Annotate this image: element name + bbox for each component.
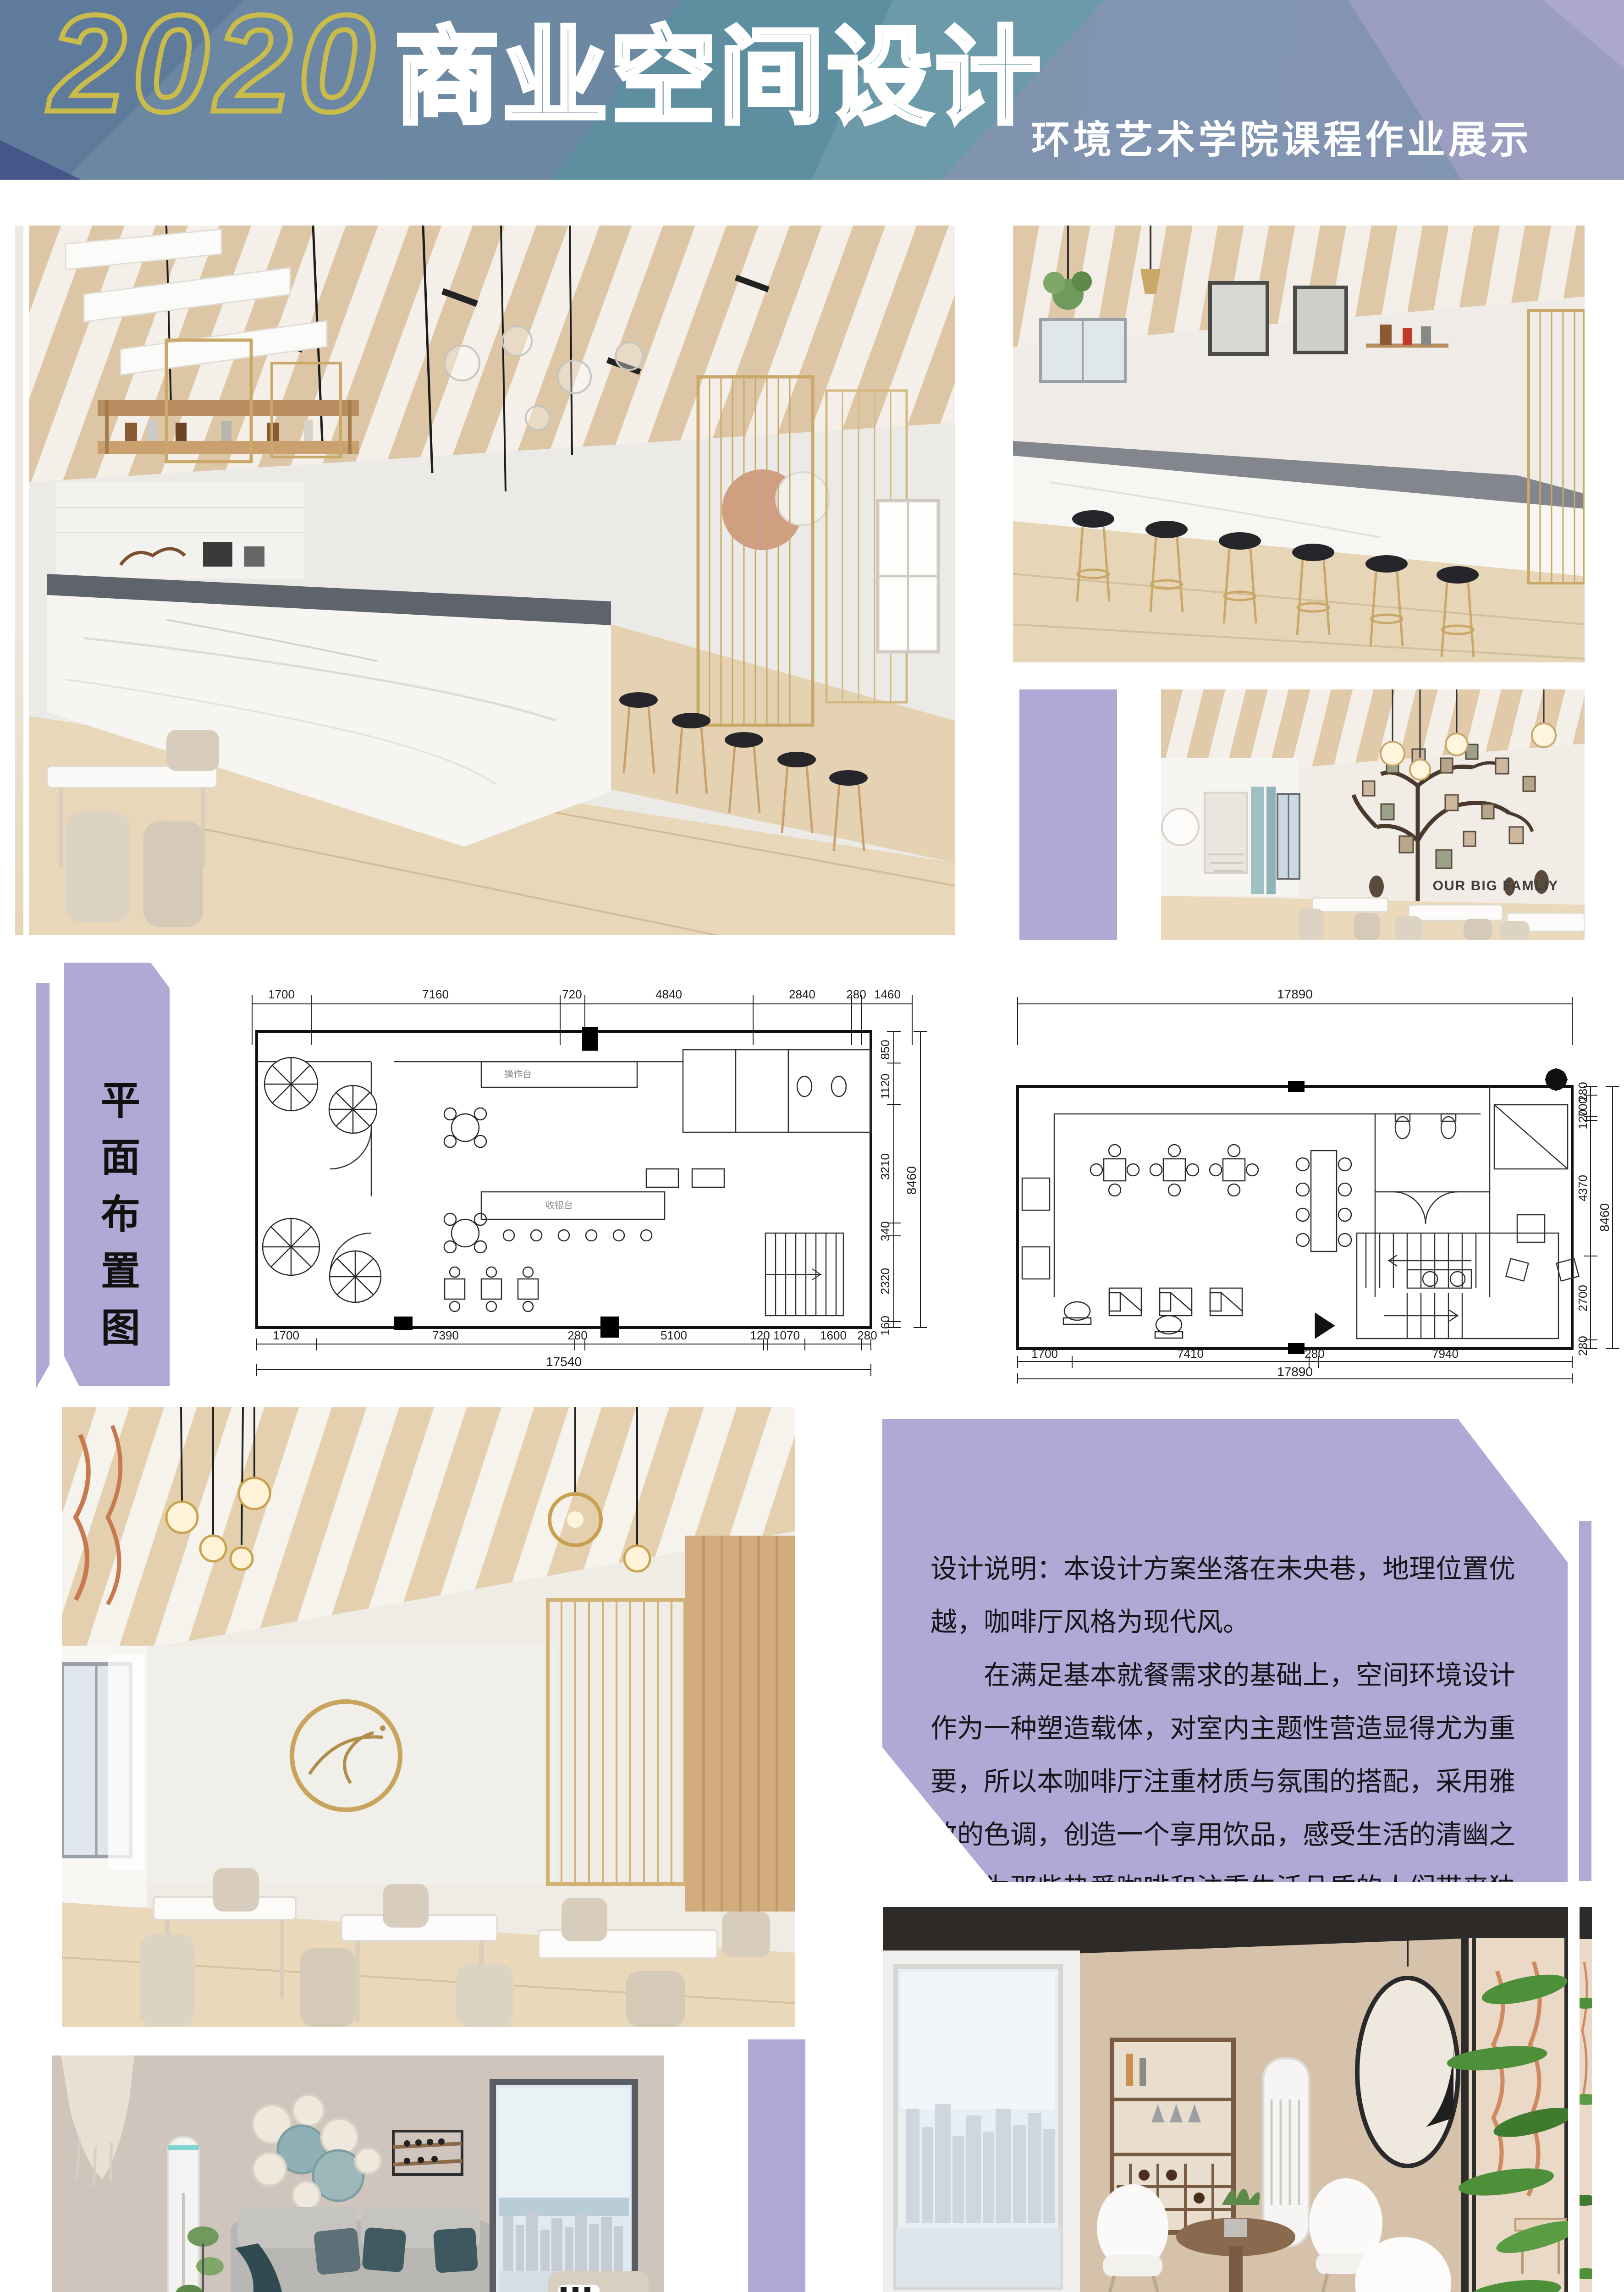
svg-text:720: 720 [562, 987, 582, 1001]
svg-text:5100: 5100 [661, 1328, 687, 1342]
svg-text:160: 160 [878, 1316, 892, 1335]
svg-text:1700: 1700 [1031, 1347, 1058, 1361]
plan-section-title: 平面布置图 [88, 1080, 146, 1364]
purple-accent-strip [1019, 689, 1117, 940]
svg-text:120: 120 [750, 1328, 770, 1342]
svg-text:7160: 7160 [422, 987, 449, 1001]
svg-text:2840: 2840 [789, 987, 815, 1001]
svg-text:280: 280 [1576, 1336, 1590, 1355]
svg-text:收银台: 收银台 [545, 1200, 573, 1211]
armchair [548, 2271, 649, 2292]
year-text: 2020 [50, 0, 381, 132]
svg-text:7390: 7390 [432, 1328, 459, 1342]
svg-text:17890: 17890 [1277, 1365, 1313, 1379]
balcony-window [883, 1950, 1080, 2292]
svg-text:1460: 1460 [874, 987, 901, 1001]
svg-text:4370: 4370 [1576, 1175, 1590, 1201]
svg-text:280: 280 [1305, 1347, 1324, 1361]
svg-text:17890: 17890 [1277, 987, 1313, 1001]
svg-text:3210: 3210 [878, 1153, 892, 1180]
dining-room-photo [62, 1407, 795, 2027]
svg-text:1700: 1700 [273, 1328, 299, 1342]
poster-page: { "header": { "year": "2020", "title": "… [0, 0, 1624, 2292]
svg-text:1600: 1600 [820, 1328, 847, 1342]
svg-text:280: 280 [846, 987, 866, 1001]
svg-text:2320: 2320 [878, 1268, 892, 1295]
svg-text:7410: 7410 [1177, 1347, 1204, 1361]
design-description-block: 设计说明：本设计方案坐落在未央巷，地理位置优越，咖啡厅风格为现代风。 在满足基本… [882, 1419, 1568, 1882]
plan-banner-accent [36, 983, 50, 1389]
cafe-bar-interior-photo [29, 226, 955, 935]
plan-section-banner: 平面布置图 [64, 963, 170, 1386]
svg-text:280: 280 [857, 1328, 877, 1342]
purple-accent-strip [748, 2039, 805, 2292]
square-tables [1063, 1145, 1351, 1338]
svg-text:8460: 8460 [1597, 1203, 1612, 1232]
poster-subtitle: 环境艺术学院课程作业展示 [1031, 109, 1532, 165]
floor-plan-level1: 1700 7160 720 4840 2840 280 1460 [197, 976, 963, 1384]
sofa [231, 2207, 492, 2292]
balcony-tea-corner-photo [883, 1907, 1568, 2292]
svg-text:4840: 4840 [655, 987, 682, 1001]
svg-text:120: 120 [1576, 1109, 1590, 1129]
description-paragraph-1: 设计说明：本设计方案坐落在未央巷，地理位置优越，咖啡厅风格为现代风。 [930, 1543, 1540, 1649]
window-city-view [493, 2082, 635, 2292]
cafe-bar-photo-sliver [15, 226, 23, 935]
purple-accent-strip-right [1579, 1521, 1591, 1881]
svg-text:8460: 8460 [904, 1166, 919, 1195]
floor-plan-level2: 17890 [995, 976, 1624, 1384]
svg-text:17540: 17540 [546, 1355, 582, 1369]
patio-umbrellas [263, 1058, 381, 1302]
svg-text:850: 850 [878, 1040, 892, 1059]
svg-text:340: 340 [878, 1221, 892, 1241]
svg-text:1120: 1120 [878, 1074, 892, 1099]
poster-title: 商业空间设计 [394, 19, 1043, 135]
svg-text:1070: 1070 [773, 1328, 800, 1342]
family-wall-dining-photo: OUR BIG FAMLIY [1161, 689, 1585, 940]
svg-text:操作台: 操作台 [504, 1069, 532, 1080]
svg-text:1700: 1700 [268, 987, 295, 1001]
family-wall-text: OUR BIG FAMLIY [1433, 878, 1559, 893]
svg-text:2700: 2700 [1576, 1285, 1590, 1311]
living-room-photo [52, 2055, 664, 2292]
header-banner: 2020 商业空间设计 环境艺术学院课程作业展示 [0, 0, 1624, 180]
svg-text:280: 280 [567, 1328, 587, 1342]
balcony-photo-sliver [1580, 1907, 1592, 2292]
bar-counter-photo [1013, 226, 1585, 662]
svg-text:7940: 7940 [1432, 1347, 1459, 1361]
round-tables [444, 1108, 538, 1311]
design-description-text: 设计说明：本设计方案坐落在未央巷，地理位置优越，咖啡厅风格为现代风。 在满足基本… [930, 1543, 1540, 1968]
